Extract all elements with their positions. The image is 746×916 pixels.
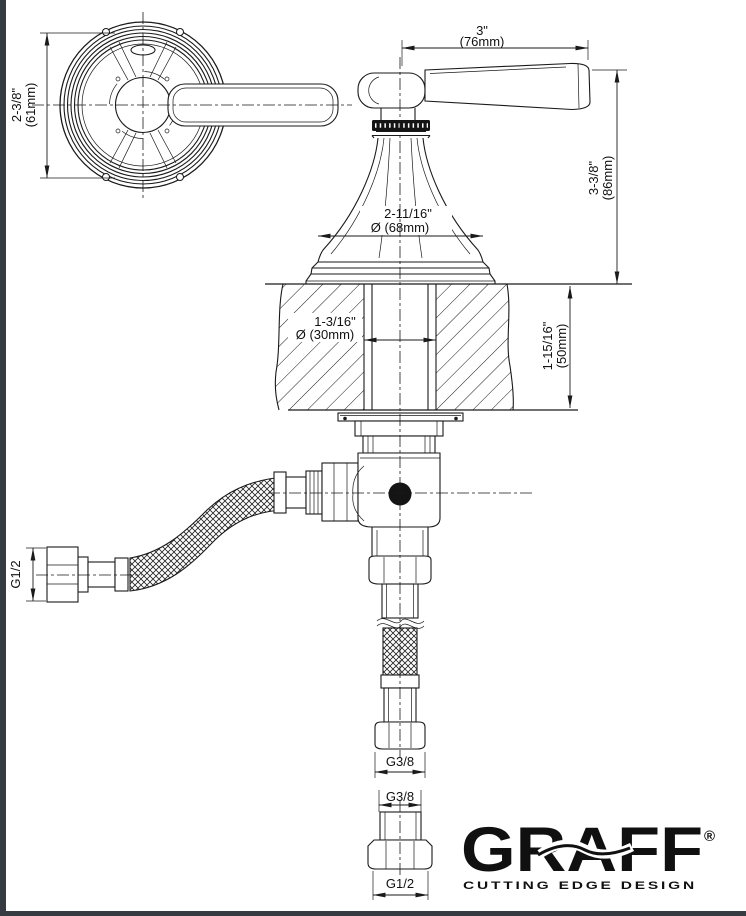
bottom-edge-bar [0, 911, 746, 916]
dim-deck-in: 1-15/16" [540, 321, 555, 370]
technical-drawing-page: 2-3/8" (61mm) 3" (76m [0, 0, 746, 916]
dim-inlet-thread: G1/2 [8, 548, 46, 601]
rim-screw [103, 29, 110, 36]
label-adapter-bottom-thread: G1/2 [386, 876, 414, 891]
dim-handle-height-mm: (86mm) [600, 156, 615, 201]
dim-handle-height: 3-3/8" (86mm) [586, 70, 627, 284]
graff-logo: GRAFF ® CUTTING EDGE DESIGN [461, 815, 715, 892]
adapter-top-cylinder [380, 812, 421, 840]
deck-hatch-left [275, 284, 364, 410]
hose-collar [274, 472, 286, 513]
lever-side [425, 63, 590, 109]
mounting-washer [338, 413, 463, 421]
hose-tube [286, 477, 306, 508]
dim-escutcheon-diameter: 2-11/16" Ø (68mm) [318, 206, 483, 236]
dim-handle-diameter-in: 2-3/8" [9, 87, 24, 122]
dim-handle-height-in: 3-3/8" [586, 160, 601, 195]
threaded-shank [363, 436, 435, 453]
valve-assembly [47, 413, 463, 749]
rim-screw [177, 29, 184, 36]
mounting-nut [355, 421, 443, 436]
dim-deck-thickness: 1-15/16" (50mm) [540, 286, 570, 408]
registered-mark: ® [704, 828, 715, 845]
dim-escutcheon-in: 2-11/16" [384, 206, 432, 221]
brand-tagline: CUTTING EDGE DESIGN [463, 880, 697, 892]
inlet-end-ferrule [78, 557, 88, 592]
deck-hatch-right [436, 284, 513, 410]
inlet-end-tube [88, 562, 115, 587]
handle-hub-side [358, 73, 425, 108]
left-edge-bar [0, 0, 6, 916]
label-inlet-thread: G1/2 [8, 560, 23, 588]
adapter-fitting: G3/8 G1/2 [368, 789, 432, 900]
dim-handle-diameter-mm: (61mm) [23, 83, 38, 128]
handle-top-view [32, 12, 352, 198]
inlet-end-collar [115, 558, 128, 591]
braided-hose-inlet [130, 477, 284, 591]
dim-hole-diameter: 1-3/16" Ø (30mm) [296, 314, 436, 342]
dim-hole-mm: Ø (30mm) [296, 327, 355, 342]
inlet-g12-nut [47, 547, 78, 602]
dim-handle-diameter: 2-3/8" (61mm) [9, 33, 115, 178]
handle-side-view [358, 63, 590, 131]
dim-handle-length: 3" (76mm) [402, 23, 588, 66]
faucet-valve-drawing: 2-3/8" (61mm) 3" (76m [0, 0, 746, 916]
break-line [377, 619, 424, 624]
countertop-section [265, 284, 632, 410]
rim-screw [103, 174, 110, 181]
dim-handle-length-mm: (76mm) [460, 34, 505, 49]
rim-screw [177, 174, 184, 181]
dim-deck-mm: (50mm) [554, 324, 569, 369]
